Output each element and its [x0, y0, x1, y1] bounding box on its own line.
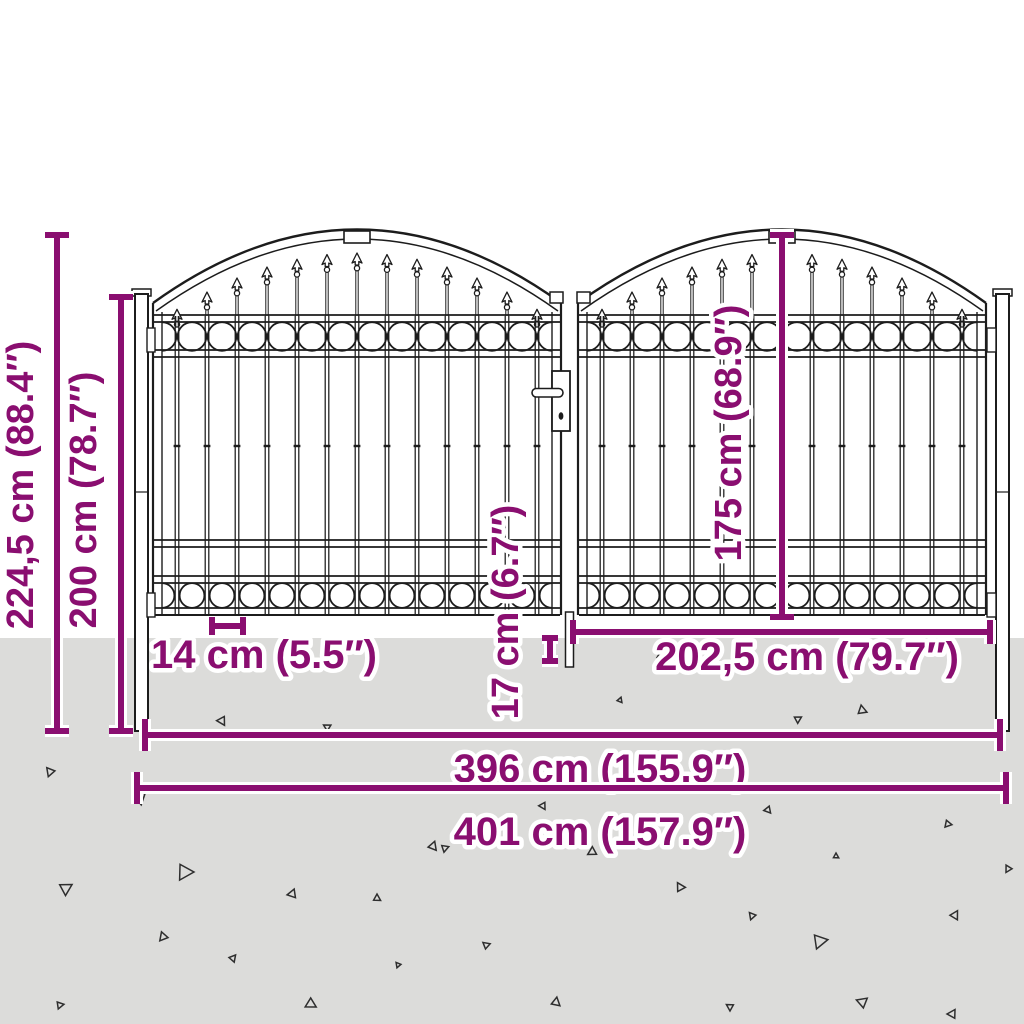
diagram-canvas: 224,5 cm (88.4″) 200 cm (78.7″) 175 cm (…: [0, 0, 1024, 1024]
gate-dimension-diagram: 224,5 cm (88.4″) 200 cm (78.7″) 175 cm (…: [0, 0, 1024, 1024]
dim-label-total-height: 224,5 cm (88.4″): [0, 341, 42, 630]
dim-label-leaf-height: 175 cm (68.9″): [708, 305, 750, 562]
dim-bar-spacing: 14 cm (5.5″): [151, 617, 377, 677]
dim-label-gate-height: 200 cm (78.7″): [63, 372, 105, 629]
dim-label-total-width: 401 cm (157.9″): [454, 810, 747, 854]
dim-label-bottom-clearance: 17 cm (6.7″): [485, 505, 527, 720]
dim-label-bar-spacing: 14 cm (5.5″): [151, 633, 377, 677]
dim-label-leaf-width: 202,5 cm (79.7″): [655, 635, 959, 679]
